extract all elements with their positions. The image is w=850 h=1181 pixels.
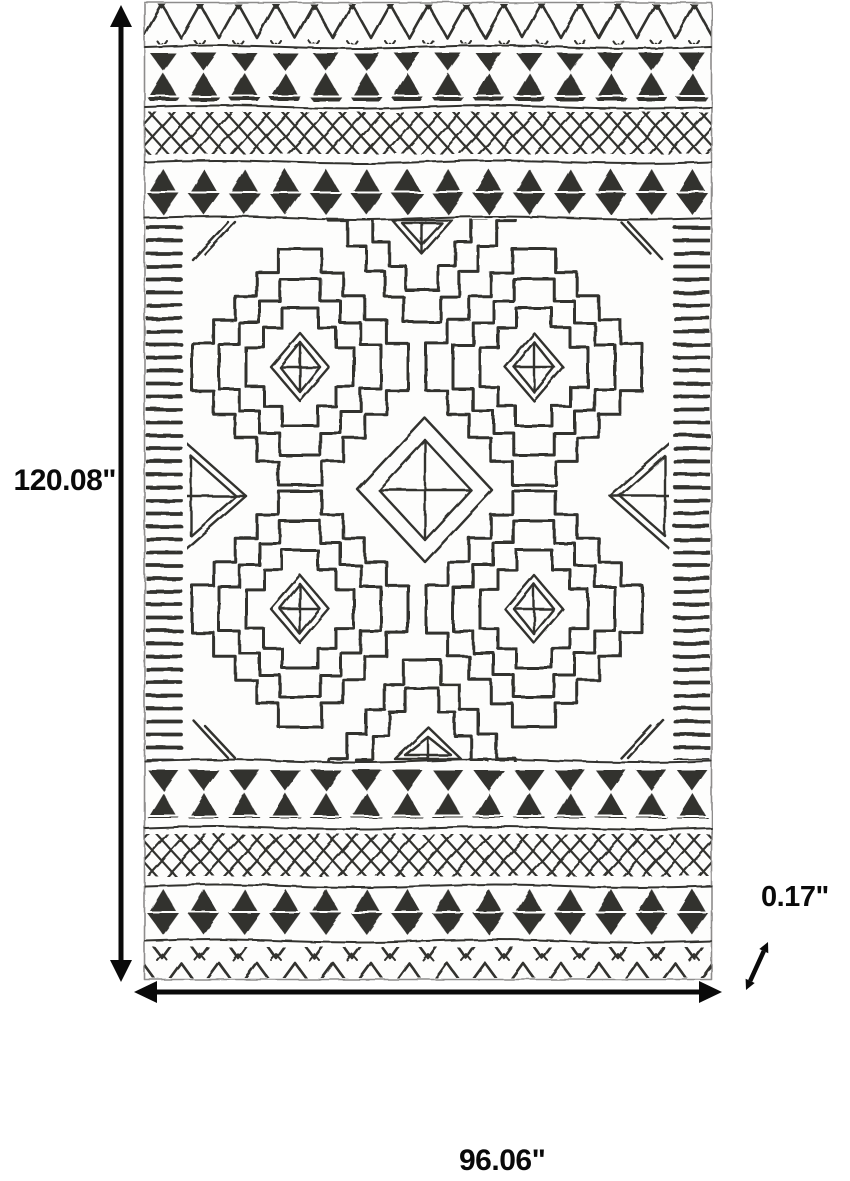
width-dimension-arrow [134,981,722,1003]
height-dimension-label: 120.08" [0,466,116,496]
arrowhead-left-icon [134,981,157,1003]
depth-dimension-arrow [746,942,769,990]
arrowhead-down-icon [110,960,132,982]
dimension-annotations [0,0,850,1181]
width-dimension-label: 96.06" [459,1146,545,1176]
arrowhead-right-icon [699,981,722,1003]
arrowhead-up-icon [110,5,132,27]
depth-dimension-label: 0.17" [761,883,829,912]
product-dimension-diagram: 120.08" 96.06" 0.17" [0,0,850,1181]
